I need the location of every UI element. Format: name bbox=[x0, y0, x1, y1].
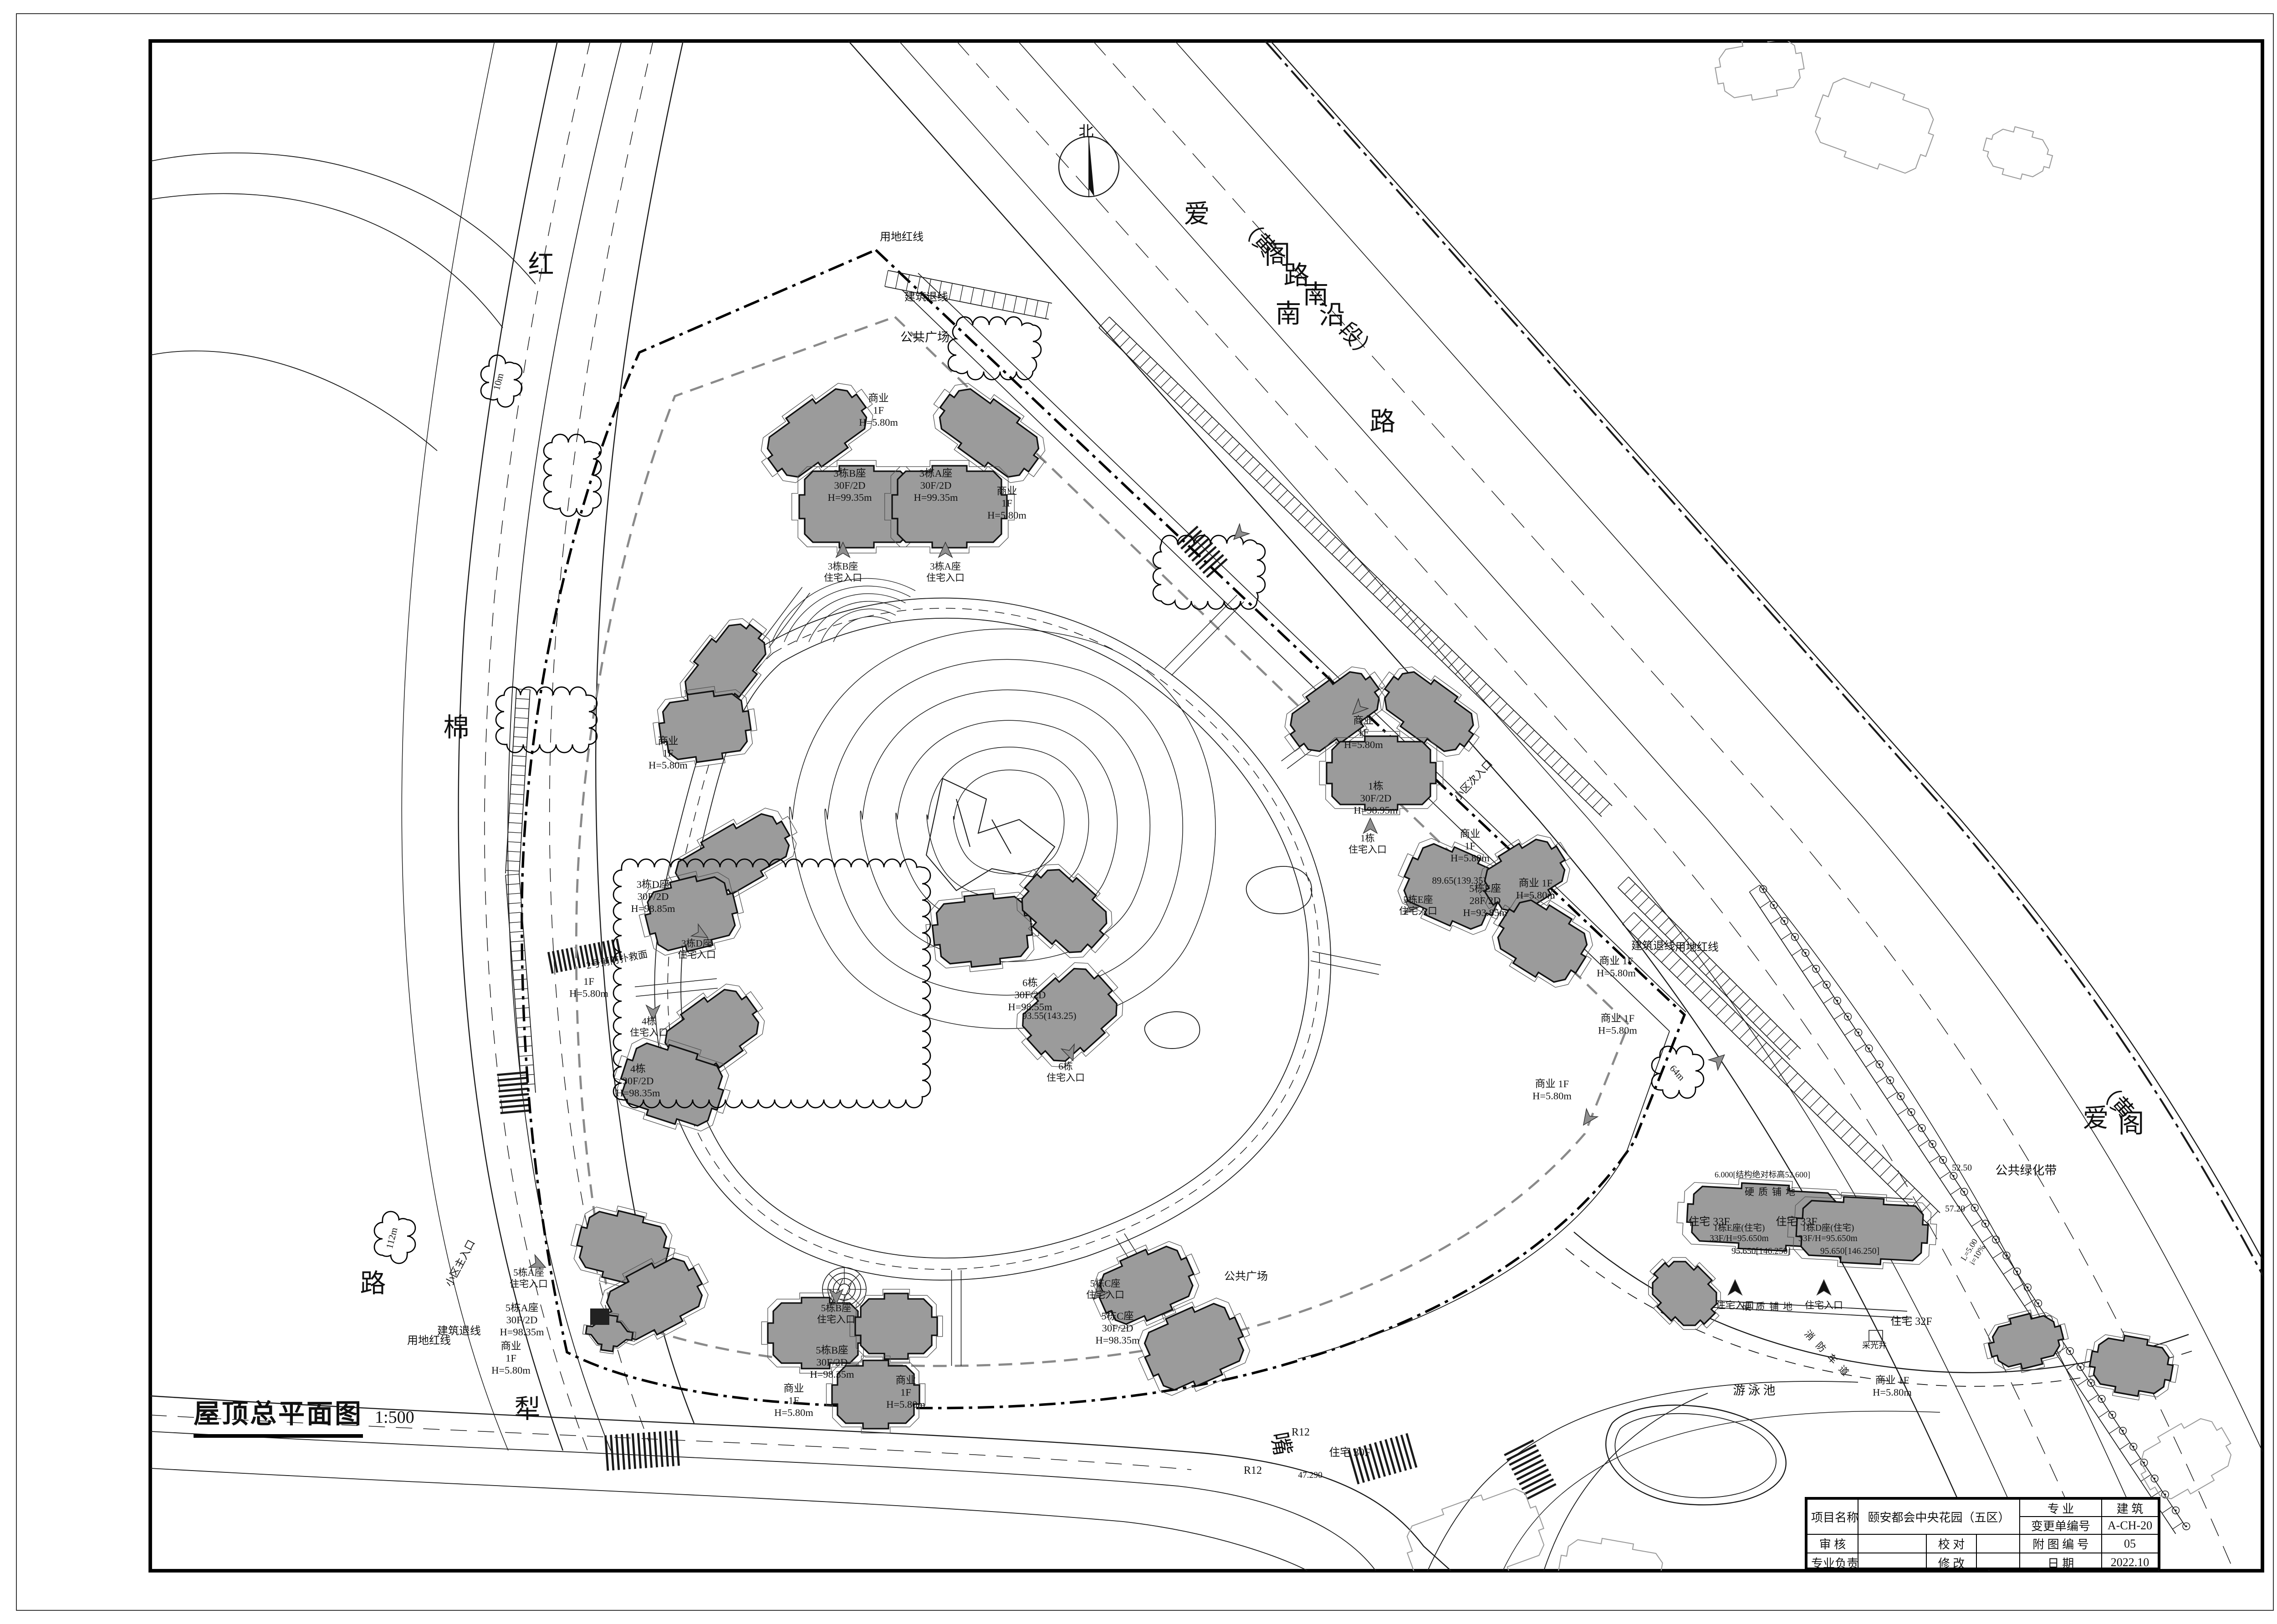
plan-shape bbox=[2164, 1493, 2166, 1495]
crosswalk bbox=[497, 1072, 530, 1113]
plan-shape bbox=[633, 1433, 635, 1469]
plan-shape bbox=[1773, 904, 1775, 906]
revise-label: 修 改 bbox=[1926, 1553, 1976, 1572]
plan-shape bbox=[1035, 300, 1038, 316]
plan-label: 5栋C座住宅入口 bbox=[1086, 1278, 1124, 1300]
plan-line bbox=[150, 193, 503, 328]
plan-shape bbox=[1291, 504, 1301, 514]
plan-shape bbox=[2109, 1427, 2119, 1434]
plan-shape bbox=[1864, 1150, 1876, 1161]
plan-shape bbox=[500, 1110, 531, 1113]
plan-shape bbox=[2027, 1287, 2028, 1288]
plan-shape bbox=[510, 932, 524, 932]
plan-shape bbox=[1984, 1223, 1986, 1225]
plan-shape bbox=[1889, 1079, 1891, 1081]
plan-shape bbox=[2037, 1303, 2039, 1304]
plan-shape bbox=[1760, 901, 1770, 908]
plan-shape bbox=[1825, 1111, 1837, 1123]
plan-label: 3栋A座30F/2DH=99.35m bbox=[914, 468, 958, 503]
plan-shape bbox=[1298, 510, 1308, 521]
north-needle bbox=[1089, 137, 1094, 197]
plan-label: 嘴 bbox=[1266, 1430, 1295, 1457]
plan-label: 北 bbox=[1079, 124, 1094, 140]
site-plan-canvas: 北爱（黄阁路南沿段）南路爱（黄阁红棉路犁嘴公共广场公共广场用地红线建筑退线用地红… bbox=[0, 0, 2277, 1624]
plan-shape bbox=[567, 948, 571, 970]
drawing-sheet: 北爱（黄阁路南沿段）南路爱（黄阁红棉路犁嘴公共广场公共广场用地红线建筑退线用地红… bbox=[0, 0, 2277, 1624]
revise-value bbox=[1976, 1553, 2020, 1572]
entrance-arrow bbox=[1709, 1050, 1729, 1070]
plan-shape bbox=[1872, 1157, 1884, 1169]
plan-shape bbox=[1766, 1026, 1777, 1036]
plan-shape bbox=[1780, 1039, 1791, 1049]
plan-label: 商业 1FH=5.80m bbox=[1532, 1078, 1572, 1102]
plan-shape bbox=[507, 851, 521, 852]
plan-shape bbox=[505, 874, 519, 875]
plan-shape bbox=[1693, 981, 1704, 993]
plan-shape bbox=[511, 784, 525, 785]
plan-line bbox=[522, 250, 1685, 1408]
plan-label: 公共广场 bbox=[900, 331, 950, 344]
plan-shape bbox=[1003, 294, 1006, 310]
plan-shape bbox=[1168, 383, 1178, 394]
plan-shape bbox=[2069, 1350, 2071, 1352]
plan-shape bbox=[2088, 1395, 2098, 1402]
plan-shape bbox=[761, 587, 802, 642]
plan-shape bbox=[514, 988, 528, 989]
plan-label: 用地红线 bbox=[1675, 941, 1719, 953]
plan-label: 建筑退线 bbox=[437, 1325, 481, 1337]
plan-label: 住宅 33F bbox=[1776, 1216, 1817, 1228]
plan-shape bbox=[516, 698, 530, 699]
plan-shape bbox=[1708, 997, 1720, 1008]
plan-shape bbox=[1551, 757, 1562, 768]
plan-label: R12 bbox=[1244, 1465, 1262, 1476]
plan-shape bbox=[1929, 1156, 1939, 1163]
plan-shape bbox=[508, 903, 521, 904]
entrance-arrow bbox=[1363, 818, 1377, 833]
plan-shape bbox=[660, 1431, 662, 1467]
plan-shape bbox=[1024, 298, 1027, 314]
plan-shape bbox=[1847, 1016, 1849, 1018]
plan-shape bbox=[1407, 1433, 1417, 1467]
plan-shape bbox=[1810, 1096, 1821, 1108]
plan-shape bbox=[1792, 949, 1802, 956]
plan-shape bbox=[1188, 403, 1199, 414]
plan-shape bbox=[1971, 1220, 1981, 1227]
plan-shape bbox=[1537, 743, 1548, 754]
plan-shape bbox=[1746, 1005, 1757, 1016]
plan-shape bbox=[1868, 1048, 1870, 1049]
plan-line bbox=[1615, 1414, 1776, 1498]
plan-shape bbox=[917, 277, 920, 293]
plan-shape bbox=[513, 969, 526, 970]
plan-label: 游泳池 bbox=[1733, 1384, 1778, 1397]
plan-label: 6栋30F/2DH=98.55m bbox=[1008, 977, 1052, 1013]
plan-shape bbox=[1665, 924, 1676, 935]
plan-shape bbox=[1263, 477, 1274, 488]
plan-shape bbox=[1332, 544, 1343, 555]
plan-shape bbox=[1638, 928, 1649, 940]
specialty-label: 专 业 bbox=[2020, 1499, 2102, 1517]
plan-label: 住宅 33F bbox=[1688, 1216, 1730, 1228]
plan-label: 3栋D座住宅入口 bbox=[678, 938, 716, 960]
plan-shape bbox=[1531, 737, 1541, 748]
plan-label: 5栋E座28F/2DH=93.85m bbox=[1463, 883, 1507, 918]
plan-shape bbox=[1631, 891, 1642, 901]
plan-shape bbox=[1250, 463, 1260, 474]
plan-shape bbox=[1773, 1033, 1784, 1043]
plan-shape bbox=[1325, 537, 1336, 548]
plan-label: 3栋B座住宅入口 bbox=[824, 561, 862, 583]
plan-label: 建筑退线 bbox=[1631, 940, 1675, 952]
plan-shape bbox=[671, 1431, 673, 1466]
plan-shape bbox=[1652, 911, 1662, 921]
plan-shape bbox=[499, 1094, 529, 1097]
plan-shape bbox=[1783, 920, 1785, 922]
plan-shape bbox=[1209, 423, 1219, 434]
plan-shape bbox=[1818, 1104, 1829, 1115]
plan-shape bbox=[1476, 683, 1486, 694]
plan-shape bbox=[1858, 1032, 1859, 1033]
plan-label: 商业 1FH=5.80m bbox=[1598, 1013, 1637, 1036]
plan-shape bbox=[1887, 1092, 1897, 1099]
plan-shape bbox=[1380, 590, 1390, 601]
plan-shape bbox=[1826, 984, 1828, 986]
plan-shape bbox=[1572, 777, 1583, 788]
plan-shape bbox=[1876, 1076, 1886, 1083]
plan-shape bbox=[1630, 920, 1642, 932]
plan-shape bbox=[1524, 730, 1534, 741]
plan-shape bbox=[1428, 637, 1439, 648]
plan-shape bbox=[649, 1432, 651, 1468]
plan-shape bbox=[1888, 1173, 1899, 1185]
plan-shape bbox=[1312, 524, 1322, 535]
plan-shape bbox=[1740, 998, 1750, 1009]
plan-shape bbox=[562, 949, 566, 971]
plan-line bbox=[1246, 866, 1312, 914]
plan-label: 用地红线 bbox=[880, 231, 924, 243]
plan-label: 住宅 32F bbox=[1890, 1315, 1932, 1328]
plan-shape bbox=[1677, 966, 1689, 978]
plan-shape bbox=[1380, 1441, 1390, 1475]
building-footprint bbox=[1984, 1307, 2068, 1375]
neighbor-building-outline bbox=[1806, 68, 1943, 183]
plan-line bbox=[953, 770, 1064, 874]
plan-label: 112m bbox=[384, 1227, 400, 1250]
plan-shape bbox=[992, 292, 995, 308]
plan-shape bbox=[1781, 933, 1791, 940]
plan-shape bbox=[1126, 344, 1137, 355]
plan-label: 5栋A座30F/2DH=98.35m bbox=[500, 1302, 544, 1338]
plan-shape bbox=[2175, 1509, 2177, 1511]
plan-shape bbox=[2154, 1477, 2155, 1479]
plan-shape bbox=[1599, 804, 1610, 815]
building-footprint bbox=[1639, 1248, 1730, 1339]
plan-label: 5栋C座30F/2DH=98.35m bbox=[1095, 1310, 1140, 1346]
plan-shape bbox=[514, 727, 528, 728]
plan-shape bbox=[498, 1078, 528, 1080]
plan-shape bbox=[1921, 1127, 1923, 1129]
building-footprint bbox=[2086, 1330, 2176, 1401]
plan-shape bbox=[1771, 917, 1781, 924]
plan-label: 3栋B座30F/2DH=99.35m bbox=[827, 468, 872, 503]
plan-line bbox=[1428, 1381, 1858, 1571]
plan-shape bbox=[1685, 974, 1696, 986]
plan-shape bbox=[643, 1433, 646, 1468]
plan-shape bbox=[1634, 912, 1940, 1213]
plan-label: 52.50 bbox=[1952, 1163, 1972, 1173]
crosswalk bbox=[1504, 1441, 1556, 1499]
plan-shape bbox=[1099, 317, 1109, 328]
plan-shape bbox=[508, 912, 522, 913]
plan-shape bbox=[1119, 337, 1130, 348]
plan-shape bbox=[1927, 1211, 1938, 1223]
plan-label: 6.000[结构绝对标高52.600] bbox=[1715, 1170, 1810, 1179]
plan-shape bbox=[1147, 364, 1157, 375]
plan-shape bbox=[1638, 897, 1649, 908]
plan-shape bbox=[513, 979, 527, 980]
plan-label: 57.20 bbox=[1945, 1204, 1965, 1214]
plan-shape bbox=[1700, 989, 1712, 1001]
plan-shape bbox=[885, 270, 888, 286]
plan-shape bbox=[2006, 1255, 2007, 1257]
building-footprint bbox=[929, 890, 1035, 971]
neighbor-building-outline bbox=[1979, 120, 2057, 185]
plan-shape bbox=[1391, 1438, 1400, 1472]
crosswalk bbox=[1349, 1433, 1416, 1484]
plan-shape bbox=[638, 1433, 640, 1469]
plan-shape bbox=[1366, 577, 1377, 588]
plan-label: 棉 bbox=[444, 713, 470, 742]
plan-shape bbox=[1815, 968, 1817, 970]
plan-shape bbox=[1740, 1027, 1751, 1039]
plan-shape bbox=[1841, 1127, 1852, 1139]
plan-shape bbox=[507, 893, 521, 894]
plan-shape bbox=[1558, 764, 1568, 774]
plan-shape bbox=[1490, 697, 1500, 708]
plan-shape bbox=[627, 1434, 629, 1469]
plan-label: 4栋住宅入口 bbox=[630, 1016, 668, 1038]
review-value bbox=[1858, 1534, 1926, 1553]
plan-shape bbox=[513, 746, 527, 747]
plan-shape bbox=[1623, 912, 1634, 924]
plan-shape bbox=[1823, 997, 1833, 1003]
plan-shape bbox=[1900, 1095, 1902, 1097]
crosswalk bbox=[605, 1431, 679, 1471]
plan-shape bbox=[509, 813, 523, 814]
date-value: 2022.10 bbox=[2102, 1553, 2158, 1572]
plan-shape bbox=[1113, 330, 1123, 341]
plan-shape bbox=[1919, 1140, 1929, 1147]
plan-label: 64m bbox=[1668, 1063, 1687, 1083]
plan-shape bbox=[1753, 1012, 1764, 1023]
plan-label: 路 bbox=[360, 1269, 386, 1298]
plan-shape bbox=[2079, 1366, 2081, 1368]
plan-shape bbox=[1243, 457, 1253, 468]
plan-shape bbox=[1618, 877, 1629, 887]
plan-shape bbox=[1579, 784, 1589, 794]
plan-shape bbox=[1370, 1444, 1379, 1478]
plan-shape bbox=[2098, 1411, 2109, 1418]
change-no-value: A-CH-20 bbox=[2102, 1517, 2158, 1534]
plan-shape bbox=[1256, 470, 1267, 481]
plan-shape bbox=[1845, 1028, 1855, 1035]
plan-shape bbox=[508, 832, 521, 833]
plan-shape bbox=[1833, 1119, 1844, 1131]
plan-label: 5栋E座住宅入口 bbox=[1399, 894, 1437, 916]
plan-shape bbox=[665, 1431, 668, 1466]
plan-shape bbox=[2130, 1459, 2140, 1466]
plan-shape bbox=[636, 988, 718, 996]
plan-shape bbox=[1931, 1143, 1933, 1145]
plan-shape bbox=[1181, 397, 1192, 408]
plan-label: 47.290 bbox=[1298, 1471, 1322, 1480]
plan-shape bbox=[497, 1072, 527, 1075]
plan-shape bbox=[512, 960, 526, 961]
plan-shape bbox=[970, 288, 974, 304]
plan-shape bbox=[1359, 570, 1370, 581]
plan-shape bbox=[515, 998, 529, 999]
plan-label: 爱 bbox=[1184, 200, 1210, 229]
plan-shape bbox=[500, 1105, 530, 1108]
plan-label: 3栋D座30F/2DH=98.85m bbox=[631, 879, 675, 914]
plan-shape bbox=[1171, 601, 1244, 675]
plan-label: 红 bbox=[528, 250, 554, 279]
plan-label: 1FH=5.80m bbox=[569, 976, 608, 999]
plan-shape bbox=[1386, 1440, 1395, 1474]
plan-shape bbox=[1713, 972, 1723, 982]
plan-shape bbox=[1353, 564, 1363, 575]
plan-shape bbox=[511, 941, 524, 942]
plan-shape bbox=[1195, 410, 1205, 421]
plan-shape bbox=[512, 765, 526, 766]
plan-shape bbox=[505, 875, 522, 1094]
plan-shape bbox=[1762, 888, 1764, 890]
plan-shape bbox=[1726, 985, 1736, 996]
plan-shape bbox=[1963, 1191, 1965, 1193]
plan-label: 沿 bbox=[1319, 301, 1345, 330]
plan-shape bbox=[1375, 1442, 1384, 1476]
entrance-arrow bbox=[1578, 1109, 1598, 1129]
plan-line bbox=[150, 153, 536, 284]
entrance-arrow bbox=[1728, 1280, 1742, 1295]
plan-shape bbox=[1387, 597, 1397, 608]
plan-shape bbox=[1903, 1188, 1915, 1200]
specialty-value: 建 筑 bbox=[2102, 1499, 2158, 1517]
plan-shape bbox=[1236, 450, 1246, 461]
plan-label: 小区主入口 bbox=[443, 1238, 477, 1288]
plan-line bbox=[926, 779, 1055, 891]
lead-value bbox=[1858, 1553, 1926, 1572]
plan-shape bbox=[1544, 750, 1555, 761]
plan-shape bbox=[1982, 1236, 1992, 1242]
plan-label: 6栋住宅入口 bbox=[1047, 1061, 1085, 1083]
plan-shape bbox=[1848, 1135, 1860, 1146]
plan-label: 建筑退线 bbox=[904, 291, 948, 303]
plan-label: 住宅入口 bbox=[1716, 1300, 1754, 1311]
plan-label: 1栋住宅入口 bbox=[1348, 833, 1387, 855]
project-name: 颐安都会中央花园（五区） bbox=[1858, 1499, 2020, 1534]
plan-label: 95.650[146.250] bbox=[1731, 1247, 1791, 1256]
neighbor-building-outline bbox=[2129, 1407, 2243, 1511]
plan-shape bbox=[2090, 1382, 2092, 1384]
plan-shape bbox=[510, 804, 523, 804]
plan-shape bbox=[635, 979, 717, 987]
plan-shape bbox=[1940, 1172, 1950, 1179]
plan-line bbox=[1144, 1012, 1200, 1049]
plan-shape bbox=[2133, 1446, 2134, 1447]
plan-shape bbox=[1794, 1081, 1805, 1093]
drawing-caption: 屋顶总平面图 1:500 bbox=[194, 1392, 414, 1438]
plan-shape bbox=[1750, 885, 1760, 892]
revision-clouds-layer bbox=[374, 317, 1704, 1263]
plan-label: 5栋A座住宅入口 bbox=[510, 1267, 548, 1289]
plan-shape bbox=[1908, 1124, 1918, 1131]
plan-shape bbox=[1805, 952, 1807, 954]
neighbor-building-outline bbox=[1554, 1532, 1670, 1615]
plan-line bbox=[1606, 1405, 1786, 1505]
proof-label: 校 对 bbox=[1926, 1534, 1976, 1553]
plan-shape bbox=[1270, 484, 1281, 494]
plan-label: 小区次入口 bbox=[1451, 758, 1495, 803]
plan-shape bbox=[1813, 981, 1823, 988]
plan-shape bbox=[499, 1089, 529, 1091]
building-footprint bbox=[855, 1293, 937, 1359]
plan-shape bbox=[520, 1065, 533, 1066]
plan-line bbox=[1298, 1031, 1669, 1359]
plan-label: R12 bbox=[1292, 1426, 1310, 1438]
plan-shape bbox=[1046, 303, 1049, 319]
plan-shape bbox=[2003, 1268, 2013, 1274]
plan-label: 商业 1FH=5.80m bbox=[1516, 877, 1555, 901]
plan-shape bbox=[1277, 490, 1287, 501]
plan-shape bbox=[1910, 1111, 1912, 1113]
sheet-value: 05 bbox=[2102, 1534, 2158, 1553]
plan-shape bbox=[1435, 644, 1445, 655]
plan-shape bbox=[1229, 443, 1240, 454]
date-label: 日 期 bbox=[2020, 1553, 2102, 1572]
plan-label: 商业1FH=5.80m bbox=[859, 392, 898, 428]
crosswalk bbox=[1178, 526, 1227, 577]
drawing-title: 屋顶总平面图 bbox=[194, 1392, 363, 1438]
plan-shape bbox=[1950, 1188, 1960, 1195]
plan-shape bbox=[2016, 1271, 2018, 1273]
plan-shape bbox=[895, 273, 899, 289]
plan-label: 商业1FH=5.80m bbox=[1450, 828, 1490, 864]
plan-label: 10m bbox=[491, 372, 505, 391]
plan-shape bbox=[2120, 1443, 2130, 1450]
plan-shape bbox=[616, 1435, 618, 1470]
plan-shape bbox=[1013, 296, 1016, 312]
plan-shape bbox=[1407, 617, 1418, 628]
plan-shape bbox=[2101, 1398, 2103, 1400]
plan-shape bbox=[1856, 1142, 1868, 1154]
plan-shape bbox=[1836, 1000, 1838, 1002]
plan-label: 南 bbox=[1276, 300, 1302, 328]
plan-shape bbox=[1802, 965, 1812, 972]
plan-shape bbox=[1787, 1046, 1797, 1056]
plan-shape bbox=[605, 1436, 608, 1471]
plan-shape bbox=[500, 1100, 530, 1102]
plan-label: 商业 1FH=5.80m bbox=[1597, 955, 1636, 979]
plan-shape bbox=[1659, 917, 1669, 928]
plan-shape bbox=[622, 1434, 624, 1470]
plan-label: 95.650[146.250] bbox=[1820, 1247, 1879, 1256]
plan-shape bbox=[1866, 1060, 1876, 1067]
plan-shape bbox=[1731, 1019, 1743, 1031]
plan-shape bbox=[515, 718, 528, 718]
plan-shape bbox=[1719, 978, 1730, 989]
